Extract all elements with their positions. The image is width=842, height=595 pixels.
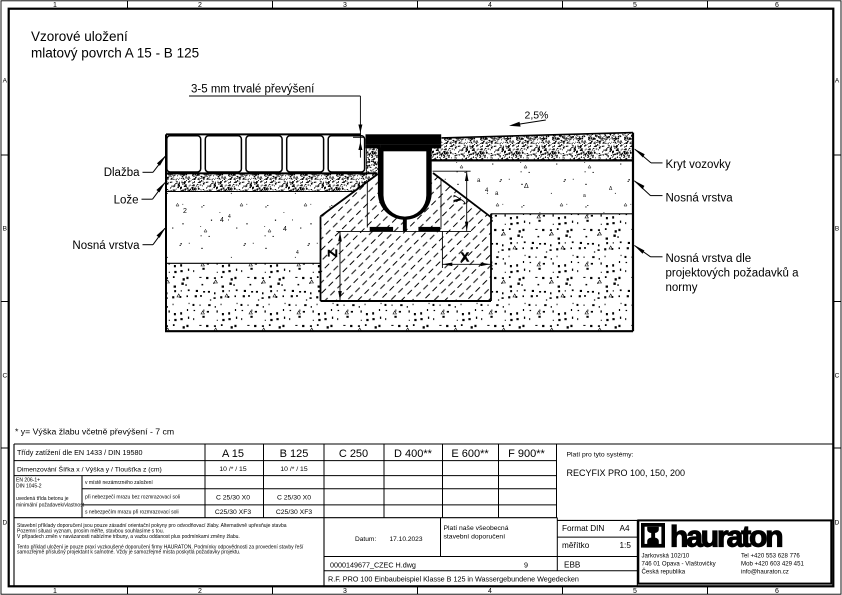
svg-text:Tel +420 553 628 776: Tel +420 553 628 776 bbox=[741, 553, 800, 560]
svg-text:B: B bbox=[3, 226, 7, 233]
svg-text:a: a bbox=[583, 193, 586, 199]
svg-text:* y= Výška žlabu včetně převýš: * y= Výška žlabu včetně převýšení - 7 cm bbox=[15, 427, 174, 437]
svg-text:Mob +420 603 429 451: Mob +420 603 429 451 bbox=[741, 561, 804, 568]
svg-text:1:5: 1:5 bbox=[620, 541, 632, 550]
svg-text:Kryt vozovky: Kryt vozovky bbox=[666, 159, 731, 171]
svg-text:A: A bbox=[3, 78, 8, 85]
svg-text:4: 4 bbox=[283, 226, 287, 233]
svg-text:4: 4 bbox=[220, 217, 224, 224]
svg-text:E 600**: E 600** bbox=[451, 448, 489, 460]
svg-text:R.F. PRO 100 Einbaubeispiel Kl: R.F. PRO 100 Einbaubeispiel Klasse B 125… bbox=[328, 575, 579, 584]
svg-text:1: 1 bbox=[53, 588, 57, 595]
svg-text:RECYFIX PRO 100, 150, 200: RECYFIX PRO 100, 150, 200 bbox=[567, 468, 686, 478]
svg-text:mlatový povrch A 15 - B 125: mlatový povrch A 15 - B 125 bbox=[31, 46, 199, 61]
svg-text:B: B bbox=[835, 226, 839, 233]
svg-text:D: D bbox=[2, 520, 7, 527]
svg-text:0000149677_CZEC H.dwg: 0000149677_CZEC H.dwg bbox=[330, 561, 416, 570]
svg-text:Δ: Δ bbox=[524, 183, 529, 190]
svg-text:stavební doporučení: stavební doporučení bbox=[444, 534, 506, 541]
svg-text:6: 6 bbox=[775, 588, 779, 595]
svg-text:při nebezpečí mrazu bez rozmra: při nebezpečí mrazu bez rozmrazovací sol… bbox=[85, 495, 180, 501]
svg-text:Platí naše všeobecná: Platí naše všeobecná bbox=[444, 525, 509, 532]
svg-text:4: 4 bbox=[488, 2, 492, 9]
svg-text:D 400**: D 400** bbox=[394, 448, 433, 460]
svg-text:1: 1 bbox=[53, 2, 57, 9]
svg-text:17.10.2023: 17.10.2023 bbox=[390, 536, 423, 543]
svg-text:minimální požadavek/vlastnost: minimální požadavek/vlastnost bbox=[16, 503, 85, 509]
svg-text:A: A bbox=[835, 78, 840, 85]
svg-text:A 15: A 15 bbox=[222, 448, 244, 460]
svg-text:6: 6 bbox=[775, 2, 779, 9]
svg-text:D: D bbox=[835, 520, 840, 527]
svg-text:Jarkovská 102/10: Jarkovská 102/10 bbox=[642, 553, 690, 560]
svg-text:Vzorové uložení: Vzorové uložení bbox=[31, 29, 128, 44]
svg-text:samozřejmě příslušný projektan: samozřejmě příslušný projektant k samotn… bbox=[17, 550, 240, 556]
svg-text:projektových požadavků a: projektových požadavků a bbox=[666, 267, 800, 279]
svg-text:Z: Z bbox=[325, 249, 340, 257]
svg-text:X: X bbox=[461, 250, 470, 265]
svg-text:5: 5 bbox=[633, 588, 637, 595]
svg-text:C: C bbox=[835, 373, 840, 380]
svg-text:C 25/30 X0: C 25/30 X0 bbox=[277, 495, 311, 502]
svg-text:4: 4 bbox=[228, 214, 231, 220]
svg-text:EN 206-1+: EN 206-1+ bbox=[16, 478, 40, 484]
svg-text:info@hauraton.cz: info@hauraton.cz bbox=[741, 569, 789, 576]
svg-text:normy: normy bbox=[666, 282, 698, 294]
svg-text:A4: A4 bbox=[620, 524, 630, 533]
svg-text:v místě nezámrzného založení: v místě nezámrzného založení bbox=[85, 480, 153, 486]
svg-text:4: 4 bbox=[296, 250, 299, 256]
svg-text:10 /* / 15: 10 /* / 15 bbox=[219, 466, 246, 473]
svg-text:3: 3 bbox=[343, 2, 347, 9]
svg-text:DIN 1045-2: DIN 1045-2 bbox=[16, 484, 42, 490]
svg-text:9: 9 bbox=[524, 561, 528, 570]
svg-text:C 25/30 X0: C 25/30 X0 bbox=[216, 495, 250, 502]
svg-text:746 01 Opava - Vlaštovičky: 746 01 Opava - Vlaštovičky bbox=[642, 561, 717, 568]
svg-text:s nebezpečím mrazu při rozmraz: s nebezpečím mrazu při rozmrazovací soli bbox=[85, 510, 179, 516]
svg-text:uvedená třída betonu je: uvedená třída betonu je bbox=[16, 496, 69, 502]
svg-text:Nosná vrstva: Nosná vrstva bbox=[72, 240, 140, 252]
svg-text:Format DIN: Format DIN bbox=[562, 524, 604, 533]
svg-text:Česká republika: Česká republika bbox=[642, 569, 686, 576]
svg-text:F 900**: F 900** bbox=[508, 448, 545, 460]
svg-text:Nosná vrstva: Nosná vrstva bbox=[666, 193, 734, 205]
svg-text:Třídy zatížení dle EN 1433 / D: Třídy zatížení dle EN 1433 / DIN 19580 bbox=[17, 448, 142, 457]
svg-text:C25/30 XF3: C25/30 XF3 bbox=[276, 509, 312, 516]
svg-text:Datum:: Datum: bbox=[355, 536, 376, 543]
svg-text:10 /* / 15: 10 /* / 15 bbox=[280, 466, 307, 473]
svg-text:y: y bbox=[447, 195, 466, 205]
svg-text:C 250: C 250 bbox=[339, 448, 368, 460]
svg-text:měřítko: měřítko bbox=[562, 541, 590, 550]
svg-text:C: C bbox=[2, 373, 7, 380]
svg-text:Platí pro tyto systémy:: Platí pro tyto systémy: bbox=[567, 452, 634, 459]
svg-text:B 125: B 125 bbox=[280, 448, 309, 460]
svg-text:2: 2 bbox=[198, 2, 202, 9]
svg-text:3-5 mm trvalé převýšení: 3-5 mm trvalé převýšení bbox=[191, 84, 315, 96]
svg-text:Lože: Lože bbox=[114, 195, 139, 207]
svg-text:V případech změn v navázanosti: V případech změn v navázanosti nabízíme … bbox=[17, 534, 240, 540]
svg-text:C25/30 XF3: C25/30 XF3 bbox=[215, 509, 251, 516]
svg-text:Nosná vrstva dle: Nosná vrstva dle bbox=[666, 253, 752, 265]
svg-text:4: 4 bbox=[488, 588, 492, 595]
svg-text:5: 5 bbox=[633, 2, 637, 9]
svg-text:2: 2 bbox=[183, 208, 187, 215]
svg-text:2: 2 bbox=[198, 588, 202, 595]
svg-text:EBB: EBB bbox=[564, 561, 581, 570]
svg-text:Dimenzování Šířka x / Výška: Dimenzování Šířka x / Výška y / Tloušťka… bbox=[17, 465, 162, 474]
svg-text:3: 3 bbox=[343, 588, 347, 595]
svg-text:Dlažba: Dlažba bbox=[104, 167, 140, 179]
svg-text:hauraton: hauraton bbox=[670, 521, 782, 554]
